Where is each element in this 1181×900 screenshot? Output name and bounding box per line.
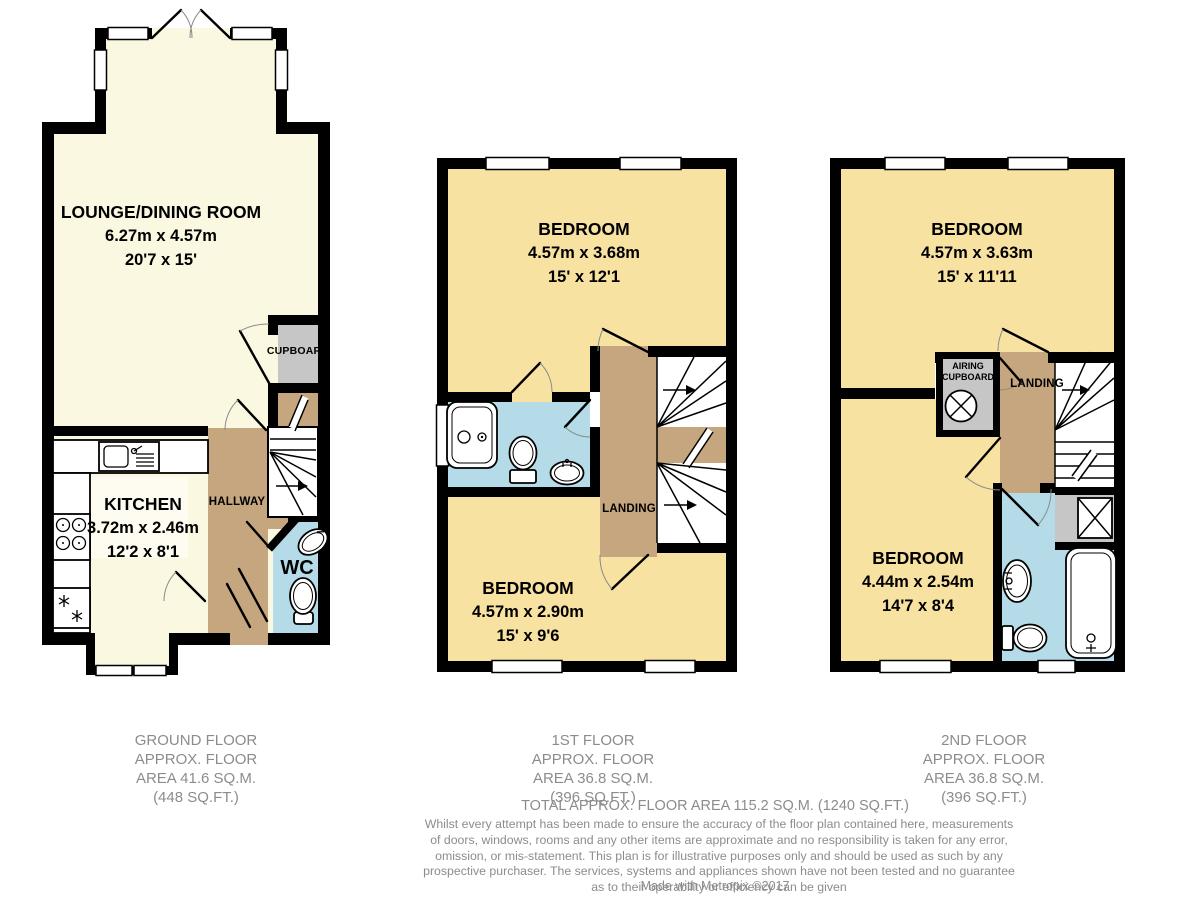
room-label-airing-cupboard: AIRING CUPBOARD <box>940 361 996 383</box>
wall <box>42 426 208 436</box>
toilet <box>1002 625 1047 652</box>
wall <box>268 315 278 335</box>
wall <box>830 158 841 672</box>
caption-line: 1ST FLOOR <box>532 731 655 750</box>
disclaimer-line: of doors, windows, rooms and any other i… <box>423 833 1015 849</box>
bay-opening <box>106 122 276 134</box>
wall <box>268 383 278 427</box>
window <box>492 661 562 673</box>
room-label-bedroom1-second: BEDROOM 4.57m x 3.63m 15' x 11'11 <box>921 217 1033 289</box>
front-door-opening <box>230 633 268 645</box>
room-name: KITCHEN <box>87 492 199 516</box>
window <box>96 666 132 676</box>
rear-opening <box>95 633 169 645</box>
caption-line: AREA 36.8 SQ.M. <box>532 769 655 788</box>
total-floor-area: TOTAL APPROX. FLOOR AREA 115.2 SQ.M. (12… <box>521 798 909 814</box>
room-dim-metric: 3.72m x 2.46m <box>87 516 199 540</box>
caption-line: APPROX. FLOOR <box>923 750 1046 769</box>
room-name: LOUNGE/DINING ROOM <box>61 200 261 224</box>
bedroom2-floor <box>841 399 1000 661</box>
wall <box>830 388 935 399</box>
room-label-landing-second: LANDING <box>1010 378 1064 390</box>
wall <box>993 483 1002 493</box>
room-label-bedroom2-second: BEDROOM 4.44m x 2.54m 14'7 x 8'4 <box>862 546 974 618</box>
caption-line: GROUND FLOOR <box>135 731 258 750</box>
bathtub <box>447 402 497 468</box>
disclaimer-line: Whilst every attempt has been made to en… <box>423 817 1015 833</box>
wall <box>726 158 737 672</box>
wall <box>437 487 600 497</box>
landing-floor <box>600 346 657 557</box>
room-dim-imperial: 15' x 12'1 <box>528 265 640 289</box>
room-label-hallway: HALLWAY <box>209 496 266 508</box>
kitchen-sink <box>99 442 159 471</box>
caption-line: (448 SQ.FT.) <box>135 788 258 807</box>
window <box>880 661 951 673</box>
room-dim-imperial: 15' x 11'11 <box>921 265 1033 289</box>
room-dim-metric: 4.57m x 3.68m <box>528 241 640 265</box>
wall <box>437 158 737 169</box>
window <box>134 666 166 676</box>
room-name: BEDROOM <box>528 217 640 241</box>
caption-second-floor: 2ND FLOOR APPROX. FLOOR AREA 36.8 SQ.M. … <box>923 731 1046 807</box>
room-dim-metric: 4.44m x 2.54m <box>862 570 974 594</box>
sink <box>1003 560 1031 602</box>
wall <box>1055 487 1114 495</box>
room-label-wc: WC <box>280 557 313 580</box>
metropix-credit: Made with Metropix ©2017 <box>641 879 790 893</box>
window <box>645 661 695 673</box>
floorplan-page: LOUNGE/DINING ROOM 6.27m x 4.57m 20'7 x … <box>0 0 1181 900</box>
window <box>620 158 681 170</box>
wall <box>590 427 600 492</box>
wall <box>590 346 600 392</box>
wall <box>552 392 590 402</box>
caption-first-floor: 1ST FLOOR APPROX. FLOOR AREA 36.8 SQ.M. … <box>532 731 655 807</box>
disclaimer-line: omission, or mis-statement. This plan is… <box>423 849 1015 865</box>
room-label-bedroom2-first: BEDROOM 4.57m x 2.90m 15' x 9'6 <box>472 576 584 648</box>
wall <box>1040 483 1055 493</box>
landing-floor <box>1000 352 1055 495</box>
caption-line: APPROX. FLOOR <box>532 750 655 769</box>
room-label-kitchen: KITCHEN 3.72m x 2.46m 12'2 x 8'1 <box>87 492 199 564</box>
room-label-lounge: LOUNGE/DINING ROOM 6.27m x 4.57m 20'7 x … <box>61 200 261 272</box>
wall <box>993 487 1002 661</box>
caption-ground-floor: GROUND FLOOR APPROX. FLOOR AREA 41.6 SQ.… <box>135 731 258 807</box>
shower <box>1078 498 1112 538</box>
window <box>486 158 549 170</box>
caption-line: 2ND FLOOR <box>923 731 1046 750</box>
wc-toilet <box>290 578 316 624</box>
caption-line: (396 SQ.FT.) <box>923 788 1046 807</box>
wall <box>657 543 726 553</box>
room-name: BEDROOM <box>921 217 1033 241</box>
room-label-cupboard: CUPBOARD <box>267 345 329 357</box>
bedroom2-floor <box>657 553 726 661</box>
window <box>885 158 945 170</box>
wall <box>42 633 330 645</box>
room-dim-imperial: 15' x 9'6 <box>472 624 584 648</box>
room-name: BEDROOM <box>472 576 584 600</box>
room-name: BEDROOM <box>862 546 974 570</box>
wall <box>648 346 726 357</box>
room-label-bedroom1-first: BEDROOM 4.57m x 3.68m 15' x 12'1 <box>528 217 640 289</box>
caption-line: AREA 41.6 SQ.M. <box>135 769 258 788</box>
window <box>1008 158 1068 170</box>
window <box>108 28 148 40</box>
room-dim-metric: 4.57m x 2.90m <box>472 600 584 624</box>
bay-floor <box>106 39 276 134</box>
room-dim-imperial: 14'7 x 8'4 <box>862 594 974 618</box>
window <box>232 28 272 40</box>
bathtub <box>1066 548 1116 658</box>
room-label-landing-first: LANDING <box>602 503 656 515</box>
wall <box>830 158 1125 169</box>
room-dim-metric: 4.57m x 3.63m <box>921 241 1033 265</box>
room-dim-imperial: 12'2 x 8'1 <box>87 540 199 564</box>
window <box>1038 661 1075 673</box>
toilet <box>510 437 537 484</box>
window <box>276 50 288 90</box>
wall <box>830 661 1125 672</box>
caption-line: APPROX. FLOOR <box>135 750 258 769</box>
wall <box>1048 352 1114 363</box>
wall <box>448 392 512 402</box>
room-dim-imperial: 20'7 x 15' <box>61 248 261 272</box>
freezer-icon <box>53 588 90 628</box>
stove <box>53 514 90 560</box>
disclaimer-line: prospective purchaser. The services, sys… <box>423 864 1015 880</box>
room-dim-metric: 6.27m x 4.57m <box>61 224 261 248</box>
caption-line: AREA 36.8 SQ.M. <box>923 769 1046 788</box>
window <box>95 50 107 90</box>
